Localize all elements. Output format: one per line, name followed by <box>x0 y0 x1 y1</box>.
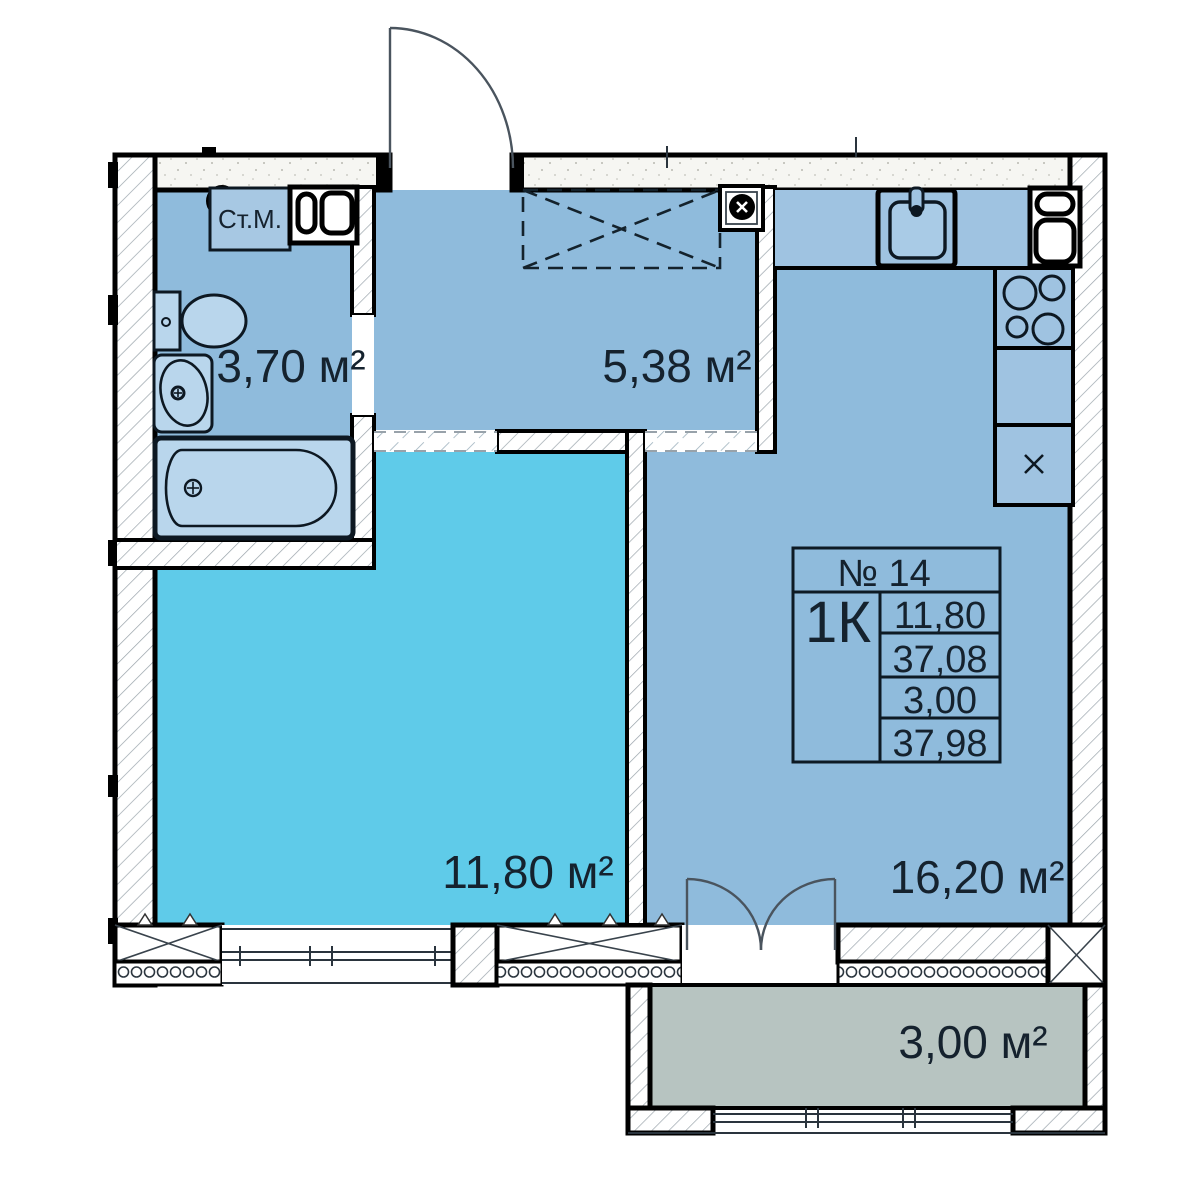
apartment-number: № 14 <box>837 553 931 595</box>
bottom-wall-pier <box>453 925 497 985</box>
table-value-total: 37,98 <box>892 723 987 765</box>
opening-strip <box>645 431 757 452</box>
insulation-band <box>115 962 222 985</box>
bathroom-area-label: 3,70 м² <box>216 340 365 392</box>
wall-joint-mark <box>202 147 216 157</box>
opening-strip <box>374 431 497 452</box>
right-wall <box>1070 155 1105 985</box>
fridge <box>1030 188 1080 266</box>
bathtub <box>155 438 353 538</box>
living-room-top-wall <box>497 431 645 452</box>
table-value-balcony: 3,00 <box>903 680 977 722</box>
insulation-band <box>497 962 682 985</box>
wall-joint-mark <box>108 775 118 797</box>
hallway-kitchen-opening <box>645 431 757 452</box>
table-value-area: 37,08 <box>892 639 987 681</box>
hallway-area-label: 5,38 м² <box>602 340 751 392</box>
living-room-doorway-opening <box>374 431 497 452</box>
balcony-corner-block <box>628 1108 713 1133</box>
washing-machine-label: Ст.М. <box>218 204 282 234</box>
table-value-living: 11,80 <box>894 595 986 637</box>
bottom-wall-hatched-panel <box>838 925 1048 962</box>
hallway-floor <box>374 190 757 430</box>
kitchen-cabinet <box>995 425 1073 505</box>
floor-plan-page: Ст.М. <box>0 0 1200 1200</box>
living-room-window <box>222 925 453 985</box>
bathroom-bottom-wall <box>115 540 374 568</box>
living-kitchen-wall <box>627 431 645 925</box>
kitchen-counter-segment <box>995 348 1073 425</box>
insulation-band <box>838 962 1048 985</box>
wall-joint-mark <box>108 295 118 325</box>
apartment-type: 1К <box>805 590 871 655</box>
washing-machine <box>290 187 357 243</box>
balcony-area-label: 3,00 м² <box>898 1016 1047 1068</box>
top-wall-right-segment <box>512 155 1105 190</box>
stove <box>995 268 1073 348</box>
kitchen-sink <box>878 188 955 266</box>
floor-plan-canvas: Ст.М. <box>0 0 1200 1200</box>
door-jamb <box>376 156 389 188</box>
living-room-area-label: 11,80 м² <box>442 846 613 898</box>
washbasin <box>154 355 213 432</box>
vent-shaft <box>720 186 763 230</box>
window-gap <box>222 925 453 985</box>
balcony-corner-block <box>1013 1108 1105 1133</box>
wall-joint-mark <box>108 162 118 188</box>
kitchen-area-label: 16,20 м² <box>890 851 1065 903</box>
